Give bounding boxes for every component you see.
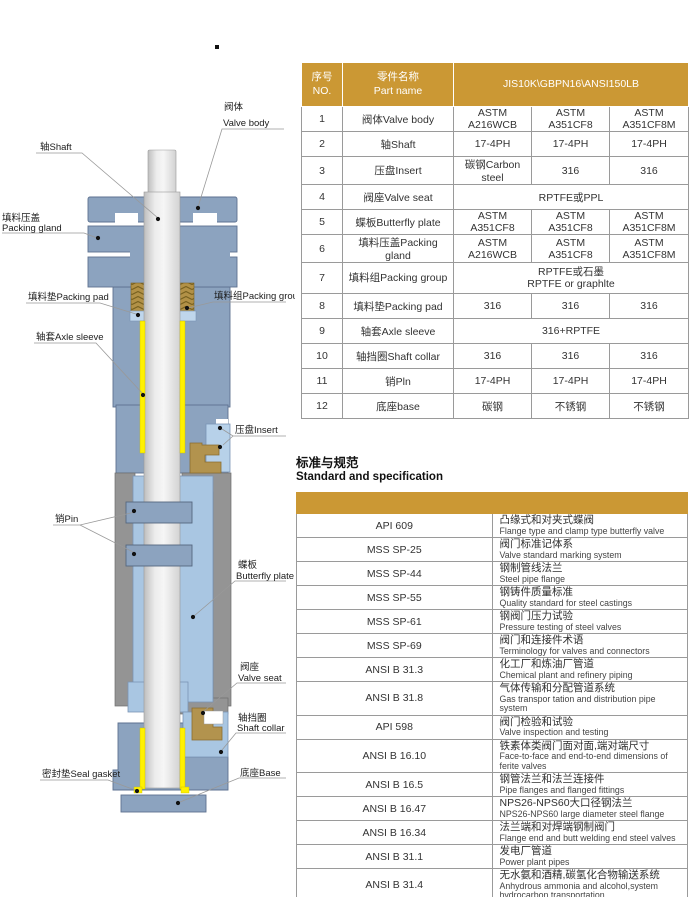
header-spec: JIS10K\GBPN16\ANSI150LB: [454, 63, 689, 107]
table-row: ANSI B 16.47 NPS26-NPS60大口径钢法兰 NPS26-NPS…: [297, 797, 688, 821]
butterfly-plate-label-zh: 蝶板: [238, 559, 258, 571]
standard-code: MSS SP-55: [297, 586, 493, 610]
cell-material: 碳钢Carbon steel: [454, 157, 532, 185]
cell-material: ASTM A351CF8: [454, 210, 532, 235]
cell-material: ASTM A351CF8: [532, 107, 610, 132]
cell-name: 蝶板Butterfly plate: [343, 210, 454, 235]
standards-table: API 609 凸缘式和对夹式蝶阀 Flange type and clamp …: [296, 492, 688, 897]
standard-desc-zh: NPS26-NPS60大口径钢法兰: [500, 798, 681, 810]
table-row: ANSI B 31.8 气体传输和分配管道系统 Gas transpor tat…: [297, 682, 688, 716]
axle-sleeve-lower-shape: [140, 728, 145, 789]
pin-shape: [126, 502, 192, 523]
catalog-page: 阀体 Valve body 轴Shaft 填料压盖 Packing gland …: [0, 0, 700, 897]
standard-desc-zh: 阀门和连接件术语: [500, 635, 681, 647]
standard-code: ANSI B 16.5: [297, 773, 493, 797]
packing-gland-label-en: Packing gland: [2, 223, 62, 234]
cell-no: 6: [302, 235, 343, 263]
cell-material: ASTM A351CF8: [532, 210, 610, 235]
axle-sleeve-shape: [180, 321, 185, 453]
cell-material: 316: [532, 294, 610, 319]
cell-no: 5: [302, 210, 343, 235]
pin-shape: [126, 545, 192, 566]
table-row: ANSI B 16.10 铁素体类阀门面对面,端对端尺寸 Face-to-fac…: [297, 739, 688, 773]
header-part-name: 零件名称 Part name: [343, 63, 454, 107]
seat-slot: [204, 711, 223, 724]
standard-desc-en: Valve inspection and testing: [500, 728, 681, 738]
standard-code: ANSI B 16.47: [297, 797, 493, 821]
table-row: 10 轴挡圈Shaft collar 316 316 316: [302, 344, 689, 369]
standard-code: ANSI B 31.1: [297, 845, 493, 869]
cell-material: 17-4PH: [454, 369, 532, 394]
standards-header-bar: [297, 493, 688, 514]
standard-desc: 化工厂和炼油厂管道 Chemical plant and refinery pi…: [492, 658, 688, 682]
pin-label: 销Pin: [55, 513, 78, 525]
table-row: MSS SP-69 阀门和连接件术语 Terminology for valve…: [297, 634, 688, 658]
valve-body-label-zh: 阀体: [224, 101, 244, 113]
cell-material-en: RPTFE or graphlte: [456, 278, 686, 290]
cell-material: 316: [454, 294, 532, 319]
seal-gasket-shape: [181, 787, 189, 793]
gold-bar: [297, 493, 688, 514]
standards-title: 标准与规范 Standard and specification: [296, 456, 443, 484]
table-row: 2 轴Shaft 17-4PH 17-4PH 17-4PH: [302, 132, 689, 157]
cell-material: 17-4PH: [532, 369, 610, 394]
table-row: ANSI B 16.34 法兰端和对焊端钢制阀门 Flange end and …: [297, 821, 688, 845]
flange-notch: [115, 213, 138, 223]
table-row: API 598 阀门检验和试验 Valve inspection and tes…: [297, 715, 688, 739]
cell-name: 阀座Valve seat: [343, 185, 454, 210]
cell-material: ASTM A351CF8: [532, 235, 610, 263]
standard-desc-zh: 凸缘式和对夹式蝶阀: [500, 515, 681, 527]
cell-material-span: RPTFE或PPL: [454, 185, 689, 210]
table-row: 11 销Pln 17-4PH 17-4PH 17-4PH: [302, 369, 689, 394]
valve-body-label-en: Valve body: [223, 118, 270, 129]
table-row: 4 阀座Valve seat RPTFE或PPL: [302, 185, 689, 210]
shaft-label: 轴Shaft: [40, 141, 72, 153]
cell-name: 填料压盖Packing gland: [343, 235, 454, 263]
standard-desc-en: Anhydrous ammonia and alcohol,system hyd…: [500, 882, 681, 897]
cell-no: 11: [302, 369, 343, 394]
cell-no: 3: [302, 157, 343, 185]
cell-material: 17-4PH: [532, 132, 610, 157]
standard-desc-zh: 钢管法兰和法兰连接件: [500, 774, 681, 786]
header-no-en: NO.: [302, 85, 342, 99]
standard-desc-en: Pipe flanges and flanged fittings: [500, 786, 681, 796]
cell-no: 9: [302, 319, 343, 344]
standard-desc-en: Pressure testing of steel valves: [500, 623, 681, 633]
table-row: ANSI B 31.3 化工厂和炼油厂管道 Chemical plant and…: [297, 658, 688, 682]
standard-desc-zh: 钢阀门压力试验: [500, 611, 681, 623]
standard-desc-zh: 法兰端和对焊端钢制阀门: [500, 822, 681, 834]
cell-name: 轴套Axle sleeve: [343, 319, 454, 344]
cell-material: ASTM A351CF8M: [610, 107, 689, 132]
standard-desc-zh: 钢制管线法兰: [500, 563, 681, 575]
standard-desc-zh: 阀门标准记体系: [500, 539, 681, 551]
cell-material: 17-4PH: [610, 132, 689, 157]
header-name-en: Part name: [343, 85, 453, 99]
axle-sleeve-label: 轴套Axle sleeve: [36, 331, 104, 343]
standard-desc: 钢铸件质量标准 Quality standard for steel casti…: [492, 586, 688, 610]
valve-seat-label-en: Valve seat: [238, 673, 282, 684]
header-no-zh: 序号: [302, 71, 342, 85]
table-row: ANSI B 16.5 钢管法兰和法兰连接件 Pipe flanges and …: [297, 773, 688, 797]
standard-desc: 钢阀门压力试验 Pressure testing of steel valves: [492, 610, 688, 634]
standard-desc-en: Flange type and clamp type butterfly val…: [500, 527, 681, 537]
standard-code: ANSI B 31.8: [297, 682, 493, 716]
cell-no: 4: [302, 185, 343, 210]
standards-title-en: Standard and specification: [296, 470, 443, 484]
parts-table: 序号 NO. 零件名称 Part name JIS10K\GBPN16\ANSI…: [301, 62, 689, 419]
standard-code: MSS SP-61: [297, 610, 493, 634]
cell-material: 17-4PH: [454, 132, 532, 157]
standard-code: API 598: [297, 715, 493, 739]
cell-name: 底座base: [343, 394, 454, 419]
axle-sleeve-shape: [140, 321, 145, 453]
base-shape: [121, 795, 206, 812]
cell-no: 2: [302, 132, 343, 157]
standard-code: ANSI B 31.3: [297, 658, 493, 682]
standard-code: MSS SP-44: [297, 562, 493, 586]
packing-pad-shape: [179, 311, 196, 321]
standard-desc-zh: 钢铸件质量标准: [500, 587, 681, 599]
table-row: ANSI B 31.1 发电厂管道 Power plant pipes: [297, 845, 688, 869]
cell-material: 316: [610, 344, 689, 369]
standard-code: MSS SP-25: [297, 538, 493, 562]
standard-desc-en: Valve standard marking system: [500, 551, 681, 561]
cell-material-span: RPTFE或石墨 RPTFE or graphlte: [454, 263, 689, 294]
cell-material-span: 316+RPTFE: [454, 319, 689, 344]
standard-desc-en: NPS26-NPS60 large diameter steel flange: [500, 810, 681, 820]
cell-material: ASTM A351CF8M: [610, 210, 689, 235]
table-row: 8 填料垫Packing pad 316 316 316: [302, 294, 689, 319]
cell-name: 填料组Packing group: [343, 263, 454, 294]
standard-desc-en: Face-to-face and end-to-end dimensions o…: [500, 752, 681, 771]
standard-code: API 609: [297, 514, 493, 538]
standard-desc-en: Power plant pipes: [500, 858, 681, 868]
standard-desc-zh: 气体传输和分配管道系统: [500, 683, 681, 695]
standard-desc-en: Flange end and butt welding end steel va…: [500, 834, 681, 844]
cell-material: 316: [454, 344, 532, 369]
table-row: MSS SP-61 钢阀门压力试验 Pressure testing of st…: [297, 610, 688, 634]
table-row: MSS SP-25 阀门标准记体系 Valve standard marking…: [297, 538, 688, 562]
top-dot: [215, 45, 219, 49]
packing-group-shape: [131, 283, 145, 312]
standard-desc: 气体传输和分配管道系统 Gas transpor tation and dist…: [492, 682, 688, 716]
standard-desc-zh: 发电厂管道: [500, 846, 681, 858]
cell-material: 不锈钢: [610, 394, 689, 419]
cell-material: 不锈钢: [532, 394, 610, 419]
table-row: 7 填料组Packing group RPTFE或石墨 RPTFE or gra…: [302, 263, 689, 294]
flange-notch: [193, 213, 217, 223]
cell-material-zh: RPTFE或石墨: [456, 266, 686, 278]
standard-code: ANSI B 16.10: [297, 739, 493, 773]
standard-desc-en: Chemical plant and refinery piping: [500, 671, 681, 681]
valve-diagram: 阀体 Valve body 轴Shaft 填料压盖 Packing gland …: [0, 0, 295, 897]
table-row: MSS SP-44 钢制管线法兰 Steel pipe flange: [297, 562, 688, 586]
shaft-top-shape: [148, 150, 176, 194]
standard-desc: 法兰端和对焊端钢制阀门 Flange end and butt welding …: [492, 821, 688, 845]
standard-desc-en: Terminology for valves and connectors: [500, 647, 681, 657]
shaft-collar-label-en: Shaft collar: [237, 723, 285, 734]
cell-no: 12: [302, 394, 343, 419]
standard-desc: 阀门检验和试验 Valve inspection and testing: [492, 715, 688, 739]
standard-desc: 阀门标准记体系 Valve standard marking system: [492, 538, 688, 562]
standard-desc: 钢管法兰和法兰连接件 Pipe flanges and flanged fitt…: [492, 773, 688, 797]
cell-material: ASTM A216WCB: [454, 235, 532, 263]
standard-desc-zh: 化工厂和炼油厂管道: [500, 659, 681, 671]
cell-name: 销Pln: [343, 369, 454, 394]
butterfly-plate-label-en: Butterfly plate: [236, 571, 294, 582]
standard-desc: 无水氨和酒精,碳氢化合物输送系统 Anhydrous ammonia and a…: [492, 869, 688, 897]
table-row: MSS SP-55 钢铸件质量标准 Quality standard for s…: [297, 586, 688, 610]
table-row: 1 阀体Valve body ASTM A216WCB ASTM A351CF8…: [302, 107, 689, 132]
cell-material: ASTM A216WCB: [454, 107, 532, 132]
cell-no: 8: [302, 294, 343, 319]
cell-name: 轴挡圈Shaft collar: [343, 344, 454, 369]
cell-name: 轴Shaft: [343, 132, 454, 157]
cell-no: 1: [302, 107, 343, 132]
header-name-zh: 零件名称: [343, 71, 453, 85]
standard-code: ANSI B 16.34: [297, 821, 493, 845]
standard-code: ANSI B 31.4: [297, 869, 493, 897]
parts-header-row: 序号 NO. 零件名称 Part name JIS10K\GBPN16\ANSI…: [302, 63, 689, 107]
standard-desc: 发电厂管道 Power plant pipes: [492, 845, 688, 869]
cell-material: 316: [532, 344, 610, 369]
standard-desc: 阀门和连接件术语 Terminology for valves and conn…: [492, 634, 688, 658]
cell-name: 阀体Valve body: [343, 107, 454, 132]
table-row: 5 蝶板Butterfly plate ASTM A351CF8 ASTM A3…: [302, 210, 689, 235]
seal-gasket-label: 密封垫Seal gasket: [42, 768, 121, 780]
table-row: 3 压盘Insert 碳钢Carbon steel 316 316: [302, 157, 689, 185]
base-label: 底座Base: [240, 767, 281, 779]
standard-desc-en: Gas transpor tation and distribution pip…: [500, 695, 681, 714]
shaft-shape: [144, 192, 180, 788]
cell-material: 316: [532, 157, 610, 185]
cell-no: 10: [302, 344, 343, 369]
standard-desc: 凸缘式和对夹式蝶阀 Flange type and clamp type but…: [492, 514, 688, 538]
standard-desc-en: Steel pipe flange: [500, 575, 681, 585]
valve-seat-label-zh: 阀座: [240, 661, 260, 673]
cell-material: 316: [610, 157, 689, 185]
standard-desc-zh: 无水氨和酒精,碳氢化合物输送系统: [500, 870, 681, 882]
standard-desc-en: Quality standard for steel castings: [500, 599, 681, 609]
packing-pad-label: 填料垫Packing pad: [28, 291, 109, 303]
cell-material: 碳钢: [454, 394, 532, 419]
cell-name: 填料垫Packing pad: [343, 294, 454, 319]
standard-desc: NPS26-NPS60大口径钢法兰 NPS26-NPS60 large diam…: [492, 797, 688, 821]
insert-label: 压盘Insert: [235, 424, 278, 436]
packing-group-label: 填料组Packing group: [214, 290, 295, 302]
table-row: 6 填料压盖Packing gland ASTM A216WCB ASTM A3…: [302, 235, 689, 263]
cell-material: ASTM A351CF8M: [610, 235, 689, 263]
axle-sleeve-lower-shape: [180, 728, 185, 789]
standard-desc: 铁素体类阀门面对面,端对端尺寸 Face-to-face and end-to-…: [492, 739, 688, 773]
cell-name: 压盘Insert: [343, 157, 454, 185]
header-no: 序号 NO.: [302, 63, 343, 107]
table-row: 9 轴套Axle sleeve 316+RPTFE: [302, 319, 689, 344]
table-row: ANSI B 31.4 无水氨和酒精,碳氢化合物输送系统 Anhydrous a…: [297, 869, 688, 897]
standard-code: MSS SP-69: [297, 634, 493, 658]
cell-material: 17-4PH: [610, 369, 689, 394]
standards-title-zh: 标准与规范: [296, 456, 443, 470]
cell-material: 316: [610, 294, 689, 319]
cell-no: 7: [302, 263, 343, 294]
table-row: API 609 凸缘式和对夹式蝶阀 Flange type and clamp …: [297, 514, 688, 538]
table-row: 12 底座base 碳钢 不锈钢 不锈钢: [302, 394, 689, 419]
standard-desc: 钢制管线法兰 Steel pipe flange: [492, 562, 688, 586]
